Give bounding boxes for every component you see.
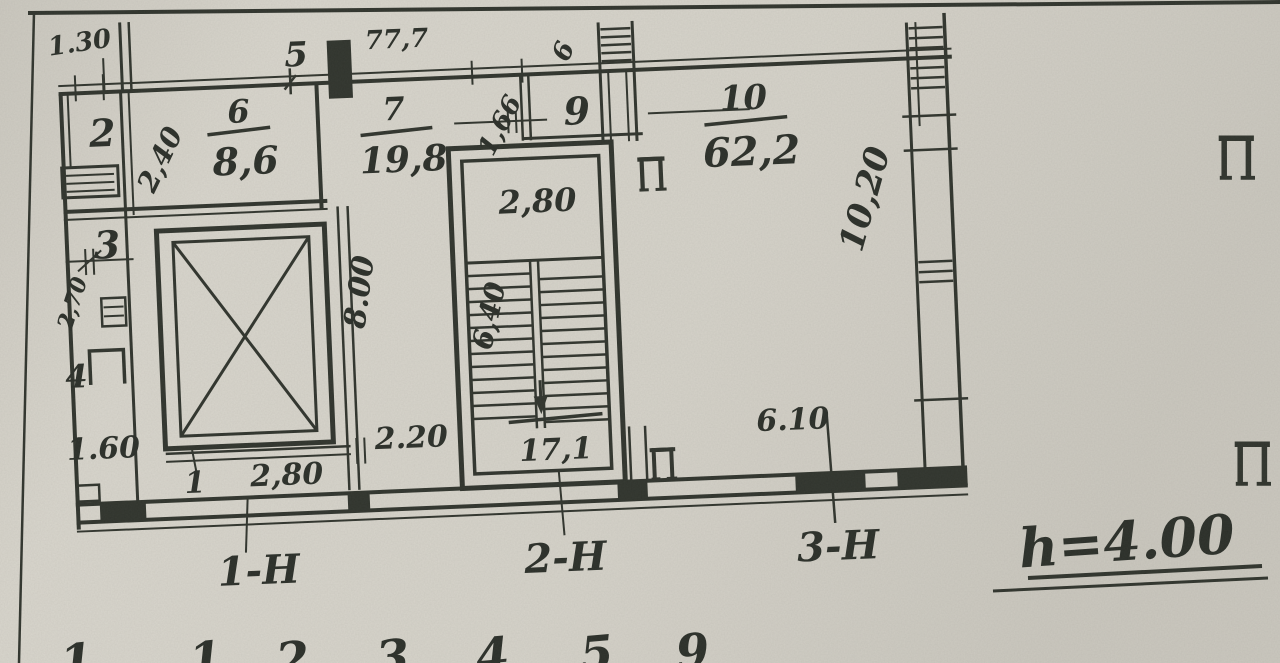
floor-plan-canvas: 1.30 2 2,40 3 2,70 4 1.60 5 77,7 6 8,6 7… [0,0,1280,663]
paper-grain-overlay [0,0,1280,663]
